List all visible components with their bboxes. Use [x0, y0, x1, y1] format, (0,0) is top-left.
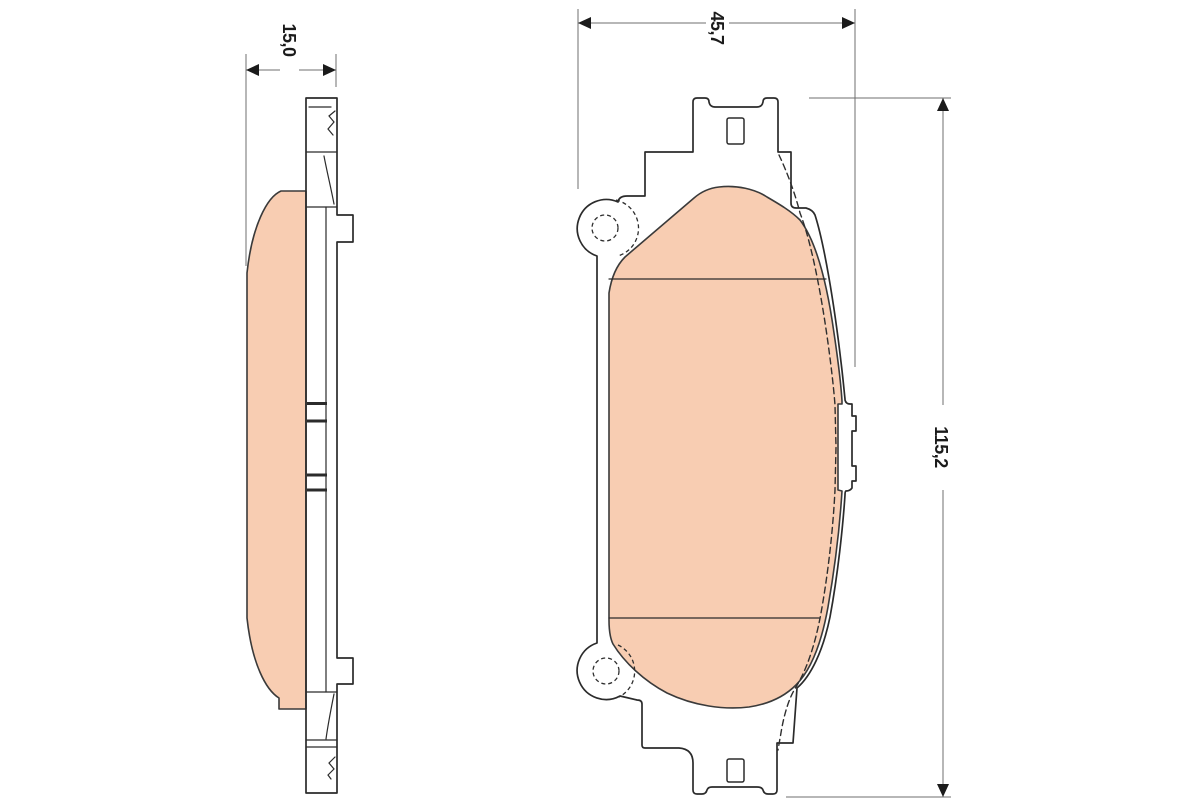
side-clip-detail-bottom	[326, 694, 335, 779]
top-tab-clip-hole	[727, 118, 744, 144]
width-label: 45,7	[707, 11, 727, 45]
thickness-label: 15,0	[279, 23, 299, 57]
dimension-arrow-down	[937, 784, 949, 797]
dimension-arrow-left	[246, 64, 259, 76]
dimension-arrow-up	[937, 98, 949, 111]
side-backplate-outline	[306, 98, 353, 793]
side-friction-pad	[247, 191, 306, 709]
side-notch-tick	[307, 489, 327, 492]
dimension-arrow-left	[578, 17, 591, 29]
side-clip-detail-top	[324, 111, 335, 204]
front-view	[577, 98, 856, 794]
dimension-arrow-right	[323, 64, 336, 76]
side-notch-tick	[307, 474, 327, 477]
side-profile-view	[247, 98, 353, 793]
front-friction-pad	[609, 186, 842, 707]
drawing-canvas: 15,0 45,7 115,2	[0, 0, 1200, 800]
dimension-arrow-right	[842, 17, 855, 29]
bottom-tab-clip-hole	[727, 759, 744, 782]
side-notch-tick	[307, 420, 327, 423]
height-label: 115,2	[931, 426, 951, 468]
side-notch-tick	[307, 402, 327, 405]
brake-pad-drawing: 15,0 45,7 115,2	[0, 0, 1200, 800]
side-plate-section-lines	[306, 152, 337, 747]
